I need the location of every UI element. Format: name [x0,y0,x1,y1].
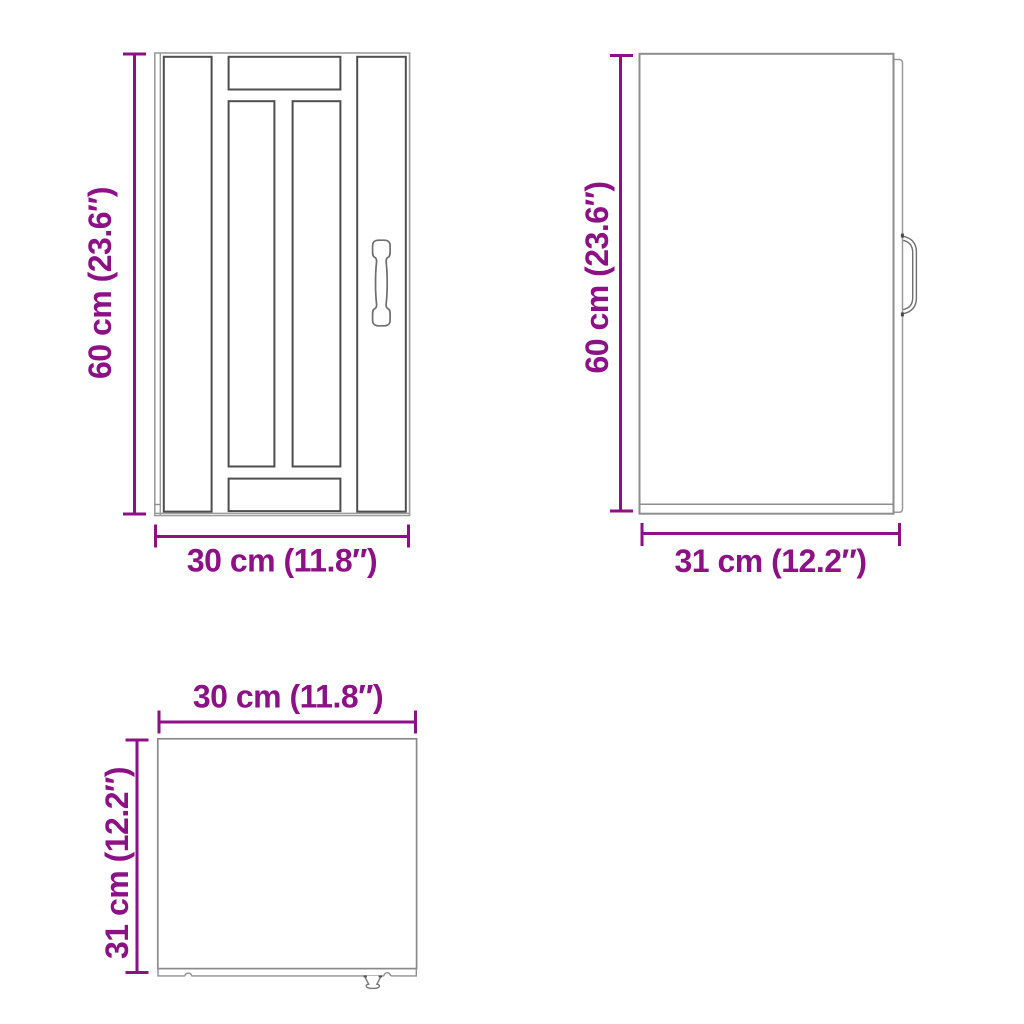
svg-text:31 cm (12.2″): 31 cm (12.2″) [674,543,866,579]
svg-text:30 cm (11.8″): 30 cm (11.8″) [187,543,377,579]
svg-text:31 cm (12.2″): 31 cm (12.2″) [99,767,135,959]
svg-text:60 cm (23.6″): 60 cm (23.6″) [579,181,615,373]
svg-text:30 cm (11.8″): 30 cm (11.8″) [193,679,383,715]
svg-text:60 cm (23.6″): 60 cm (23.6″) [82,187,118,379]
